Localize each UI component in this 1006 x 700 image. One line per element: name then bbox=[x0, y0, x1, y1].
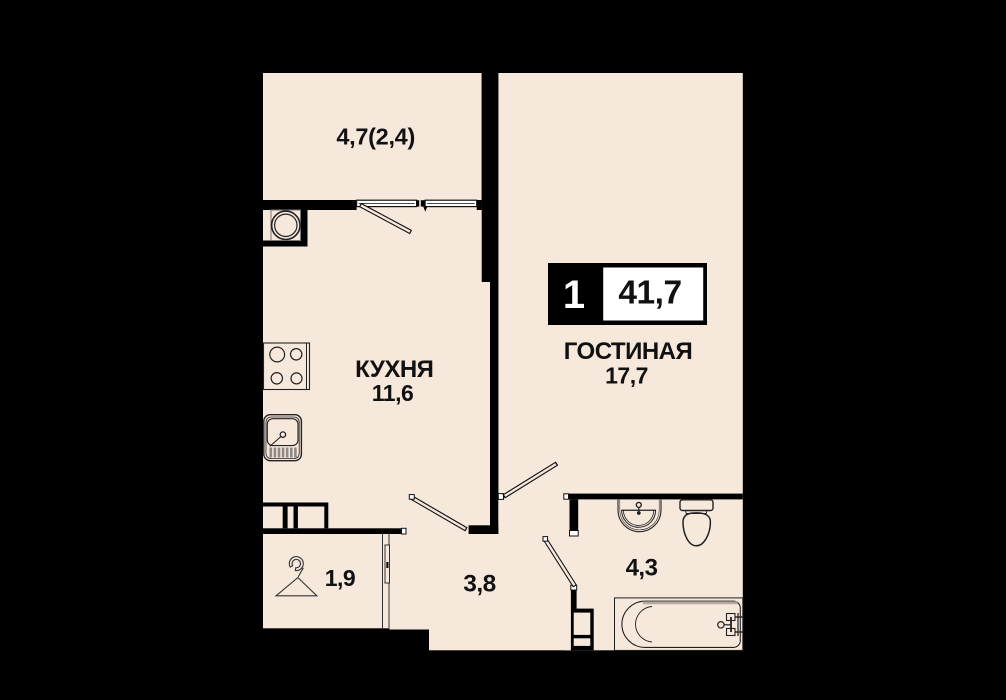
svg-text:4,3: 4,3 bbox=[626, 555, 658, 582]
svg-text:КУХНЯ: КУХНЯ bbox=[355, 356, 433, 383]
svg-text:11,6: 11,6 bbox=[372, 380, 414, 406]
svg-text:41,7: 41,7 bbox=[618, 275, 681, 312]
svg-text:ГОСТИНАЯ: ГОСТИНАЯ bbox=[564, 338, 693, 365]
svg-text:1: 1 bbox=[563, 273, 585, 317]
svg-text:4,7(2,4): 4,7(2,4) bbox=[336, 124, 415, 150]
svg-text:17,7: 17,7 bbox=[605, 362, 648, 388]
svg-text:3,8: 3,8 bbox=[463, 571, 496, 598]
svg-text:1,9: 1,9 bbox=[325, 565, 355, 591]
